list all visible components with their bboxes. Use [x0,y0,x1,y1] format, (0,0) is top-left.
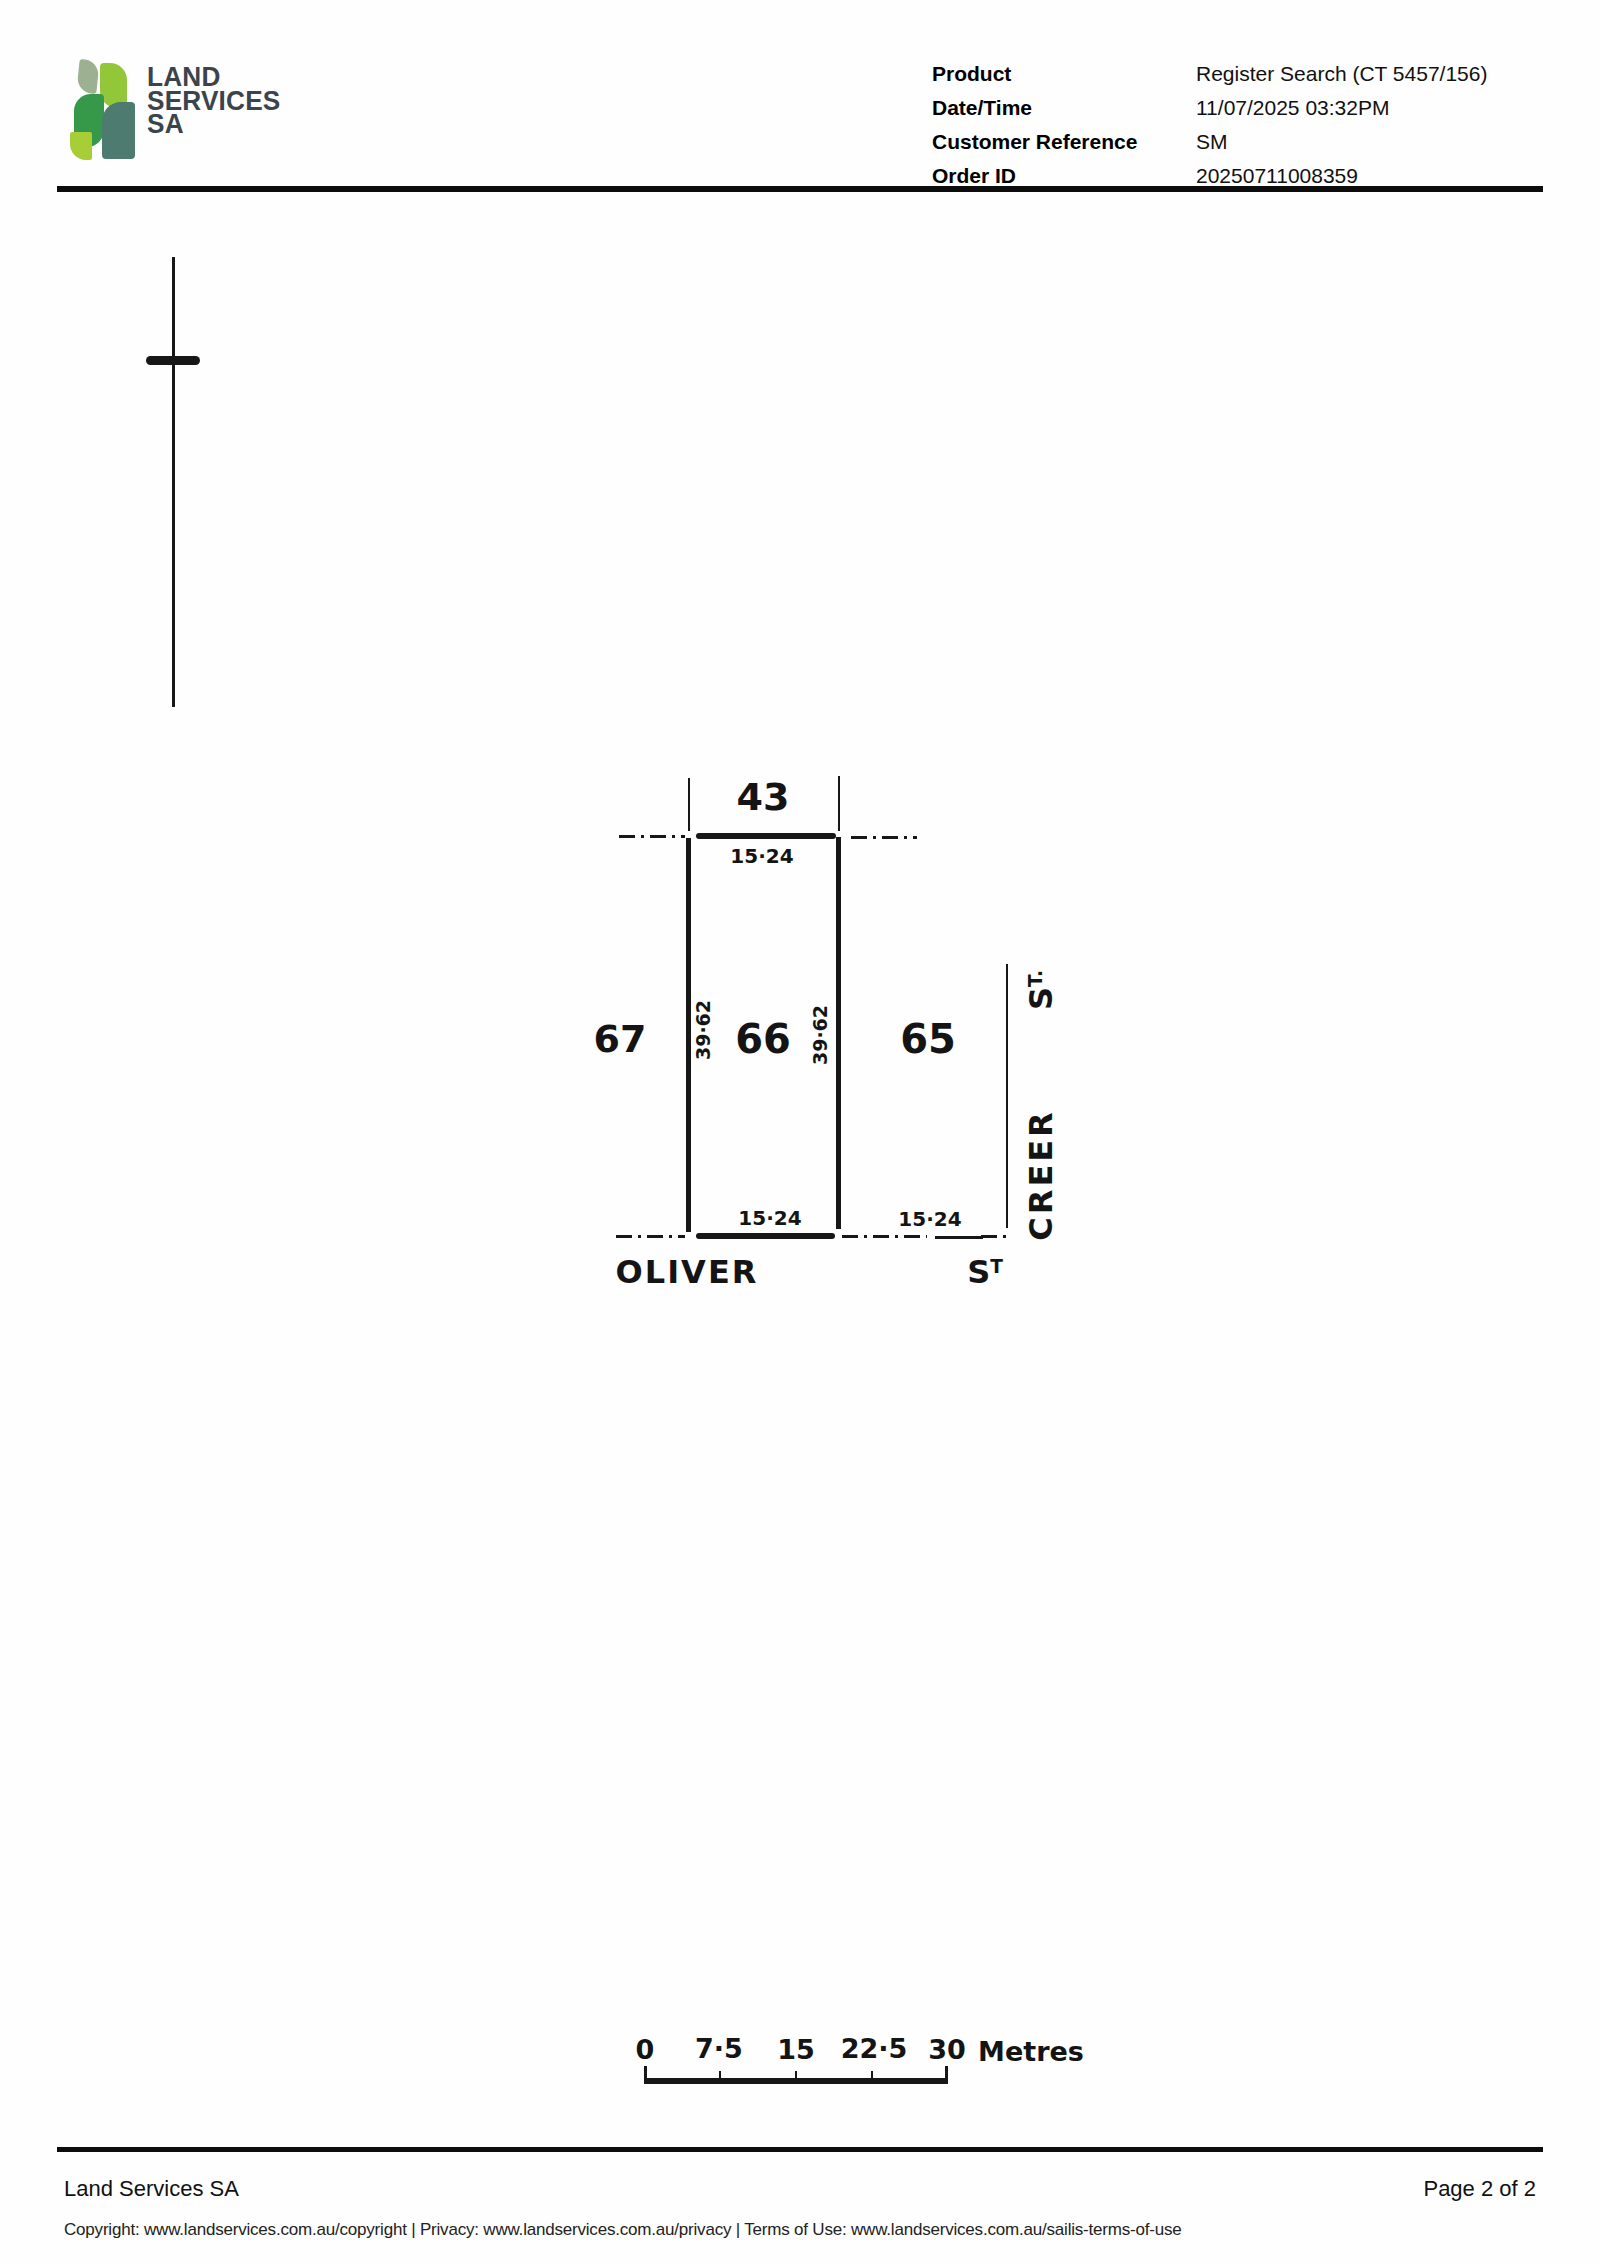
dimension-east: 39·62 [809,1005,831,1065]
dimension-bottom-east: 15·24 [898,1207,961,1231]
meta-value: SM [1196,130,1228,153]
scale-label-0: 0 [636,2034,655,2065]
dimension-top: 15·24 [730,844,793,868]
meta-label: Date/Time [932,96,1196,120]
dashed-boundary-line [981,1235,1008,1238]
logo-leaf-icon [102,102,135,159]
meta-label: Product [932,62,1196,86]
dashed-boundary-line [842,1235,927,1238]
scale-label-30: 30 [928,2034,966,2065]
lot66-east-boundary [836,837,841,1229]
footer-legal-links: Copyright: www.landservices.com.au/copyr… [64,2220,1182,2240]
street-name-oliver: OLIVER [616,1253,759,1291]
scale-bar-tick [719,2071,721,2079]
dimension-bottom-west: 15·24 [738,1206,801,1230]
street-name-creer: CREER [1022,1109,1060,1240]
lot-number-65: 65 [900,1016,956,1062]
street-suffix-oliver-st: ST [967,1253,1003,1291]
meta-label: Order ID [932,164,1196,188]
street-suffix-s: S [967,1253,990,1291]
plan-centerline-tick [146,356,200,365]
meta-value: 11/07/2025 03:32PM [1196,96,1389,119]
lot-number-43: 43 [737,775,790,819]
scale-bar-tick [945,2066,948,2079]
logo-leaf-icon [70,132,92,160]
scale-bar-tick [871,2071,873,2079]
meta-value: 20250711008359 [1196,164,1358,187]
scale-label-22-5: 22·5 [841,2033,908,2064]
street-suffix-t: T. [1025,970,1046,987]
creer-street-line [1006,964,1008,1228]
plan-road-centerline [172,257,175,707]
lot66-south-boundary [696,1233,835,1239]
extension-line [688,778,690,831]
lot-number-66: 66 [735,1016,791,1062]
meta-label: Customer Reference [932,130,1196,154]
footer-org-name: Land Services SA [64,2176,239,2202]
street-suffix-s: S [1022,987,1060,1010]
lot-number-67: 67 [594,1017,647,1061]
dashed-boundary-line [851,836,917,839]
dashed-boundary-line [616,1235,685,1238]
logo-line-3: SA [147,113,281,137]
extension-line [838,776,840,831]
dashed-boundary-line [619,835,685,838]
scale-bar-tick [644,2066,647,2079]
logo-leaf-icon [76,59,99,94]
meta-value: Register Search (CT 5457/156) [1196,62,1487,85]
logo-wordmark: LAND SERVICES SA [147,66,281,137]
meta-row-product: ProductRegister Search (CT 5457/156) [932,62,1552,86]
lot66-north-boundary [696,833,836,839]
street-line-segment [935,1236,983,1239]
scale-label-15: 15 [777,2034,815,2065]
scale-unit-label: Metres [978,2036,1084,2067]
document-page: LAND SERVICES SA ProductRegister Search … [0,0,1600,2264]
meta-row-order-id: Order ID20250711008359 [932,164,1552,188]
lot66-west-boundary [686,838,691,1232]
meta-row-customer-reference: Customer ReferenceSM [932,130,1552,154]
page-number: Page 2 of 2 [1423,2176,1536,2202]
street-suffix-t: T [990,1256,1003,1277]
street-suffix-creer-st: ST. [1022,970,1060,1010]
dimension-west: 39·62 [692,1000,714,1060]
scale-bar-tick [795,2071,797,2079]
footer-divider [57,2147,1543,2152]
meta-row-datetime: Date/Time11/07/2025 03:32PM [932,96,1552,120]
scale-label-7-5: 7·5 [695,2033,743,2064]
header-divider [57,186,1543,192]
